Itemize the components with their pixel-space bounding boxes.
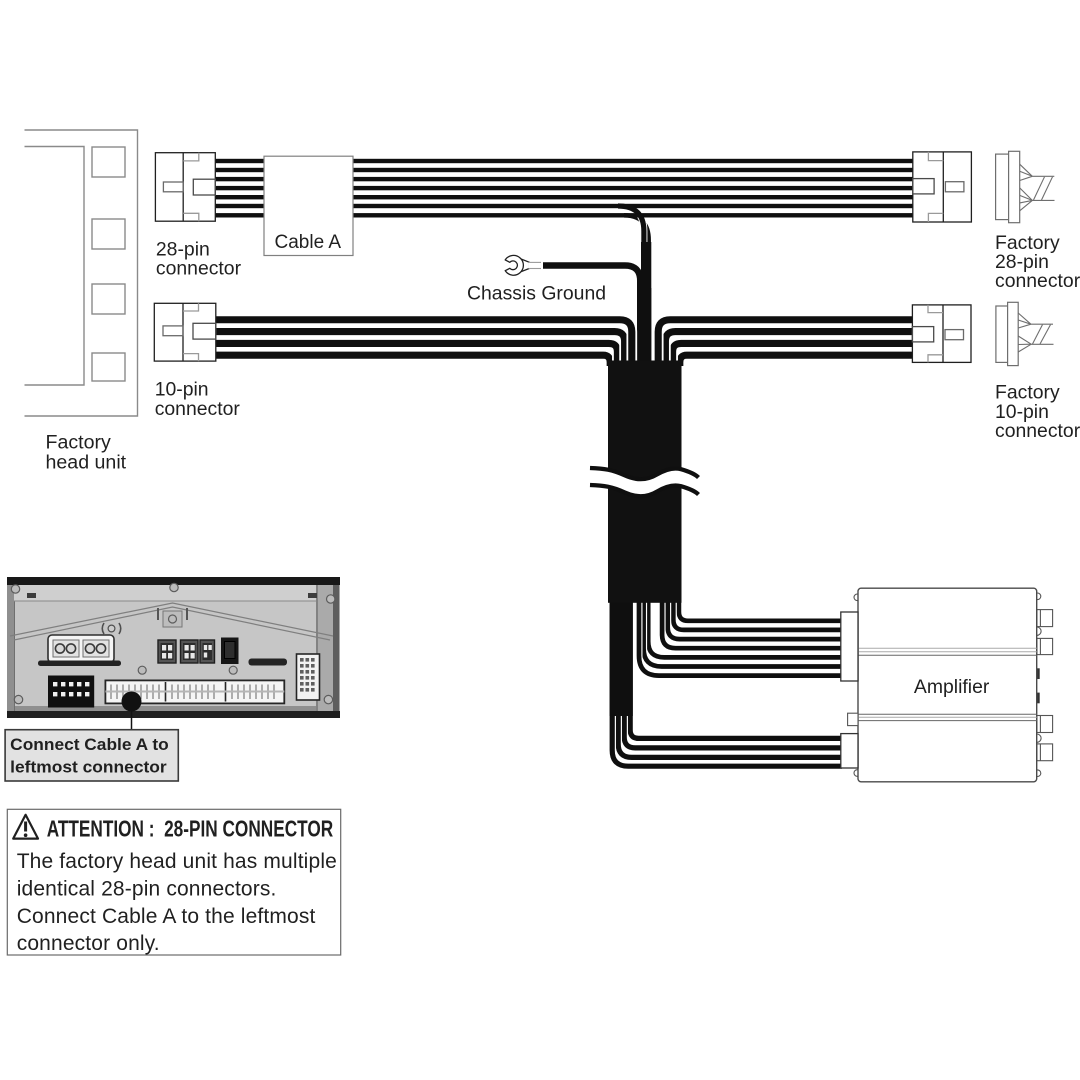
svg-text:connector: connector — [995, 420, 1080, 442]
svg-text:identical 28-pin connectors.: identical 28-pin connectors. — [17, 878, 277, 901]
svg-text:Connect Cable A to the leftmos: Connect Cable A to the leftmost — [17, 905, 316, 928]
svg-text:connector: connector — [995, 270, 1080, 292]
svg-text:head unit: head unit — [46, 452, 127, 474]
svg-text:connector: connector — [155, 398, 241, 420]
svg-text:connector only.: connector only. — [17, 932, 160, 955]
svg-text:Connect Cable A to: Connect Cable A to — [10, 736, 169, 754]
svg-text:leftmost connector: leftmost connector — [10, 759, 167, 777]
svg-text:ATTENTION : 28-PIN CONNECTOR: ATTENTION : 28-PIN CONNECTOR — [47, 816, 334, 842]
svg-text:connector: connector — [156, 258, 242, 280]
svg-text:Chassis Ground: Chassis Ground — [467, 283, 606, 305]
svg-text:Factory: Factory — [46, 432, 112, 454]
svg-text:The factory head unit has mult: The factory head unit has multiple — [17, 850, 337, 873]
svg-text:Cable A: Cable A — [275, 232, 342, 253]
svg-text:Amplifier: Amplifier — [914, 676, 990, 698]
